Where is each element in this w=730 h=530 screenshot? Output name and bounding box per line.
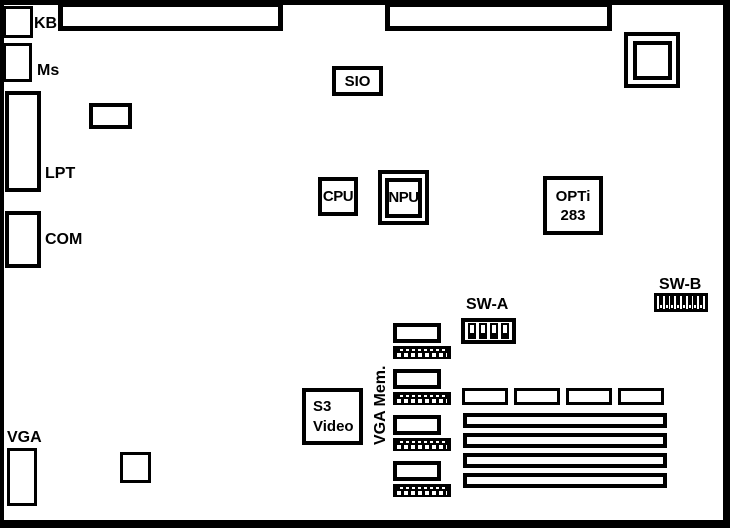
- unlabeled-component-bottom: [120, 452, 151, 483]
- vga-mem-chip: [393, 323, 441, 343]
- vga-mem-chip: [393, 415, 441, 435]
- vga-mem-socket: [393, 392, 451, 405]
- ram-slot-long: [463, 413, 667, 428]
- cpu-socket: CPU: [318, 177, 358, 216]
- sw-b-toggle: [659, 296, 663, 309]
- ram-slot-small: [566, 388, 612, 405]
- s3-video-line2: Video: [313, 417, 354, 437]
- sw-a-toggle: [490, 323, 498, 339]
- vga-label: VGA: [7, 430, 42, 446]
- sw-b-toggle: [665, 296, 669, 309]
- unlabeled-socket-outer: [624, 32, 680, 88]
- sw-b-toggle: [699, 296, 703, 309]
- lpt-label: LPT: [45, 166, 75, 182]
- opti-chipset-line1: OPTi: [556, 187, 591, 206]
- unlabeled-socket-inner: [633, 41, 672, 80]
- vga-mem-socket: [393, 346, 451, 359]
- com-label: COM: [45, 232, 82, 248]
- unlabeled-component-top: [89, 103, 132, 129]
- ram-slot-long: [463, 433, 667, 448]
- sw-b-toggle: [676, 296, 680, 309]
- com-connector: [5, 211, 41, 268]
- sw-a-toggle: [479, 323, 487, 339]
- npu-socket-outer: NPU: [378, 170, 429, 225]
- sw-b-toggle: [670, 296, 674, 309]
- vga-mem-socket: [393, 484, 451, 497]
- ram-slot-small: [462, 388, 508, 405]
- sw-a-dip-switch: [461, 318, 516, 344]
- vga-mem-label: VGA Mem.: [373, 366, 389, 445]
- vga-mem-module: [393, 415, 451, 451]
- ram-slot-long: [463, 453, 667, 468]
- sw-b-toggle: [693, 296, 697, 309]
- kb-connector: [3, 6, 33, 38]
- ram-slot-small: [514, 388, 560, 405]
- lpt-connector: [5, 91, 41, 192]
- mouse-connector: [3, 43, 32, 82]
- sio-chip: SIO: [332, 66, 383, 96]
- ram-slot-small: [618, 388, 664, 405]
- vga-mem-module: [393, 461, 451, 497]
- vga-memory-bank: [393, 323, 451, 497]
- sw-a-toggle: [468, 323, 476, 339]
- ram-slot-column: [463, 413, 667, 488]
- opti-chipset: OPTi 283: [543, 176, 603, 235]
- ram-slot-long: [463, 473, 667, 488]
- cpu-label: CPU: [323, 187, 353, 206]
- sw-b-toggle: [688, 296, 692, 309]
- vga-mem-chip: [393, 461, 441, 481]
- vga-mem-module: [393, 369, 451, 405]
- sw-b-toggle: [682, 296, 686, 309]
- sw-a-toggle: [501, 323, 509, 339]
- vga-mem-module: [393, 323, 451, 359]
- vga-mem-chip: [393, 369, 441, 389]
- top-edge-connector-left: [58, 2, 283, 31]
- sw-b-label: SW-B: [659, 277, 701, 293]
- vga-connector: [7, 448, 37, 506]
- sw-a-label: SW-A: [466, 297, 508, 313]
- ram-slot-row: [462, 388, 664, 405]
- top-edge-connector-right: [385, 2, 612, 31]
- s3-video-line1: S3: [313, 397, 331, 417]
- npu-socket-inner: NPU: [385, 178, 422, 218]
- sw-b-dip-switch: [654, 293, 708, 312]
- sio-chip-label: SIO: [345, 72, 371, 91]
- mouse-label: Ms: [37, 63, 59, 79]
- npu-label: NPU: [388, 188, 418, 207]
- kb-label: KB: [34, 16, 57, 32]
- opti-chipset-line2: 283: [560, 206, 585, 225]
- vga-mem-socket: [393, 438, 451, 451]
- s3-video-chip: S3 Video: [302, 388, 363, 445]
